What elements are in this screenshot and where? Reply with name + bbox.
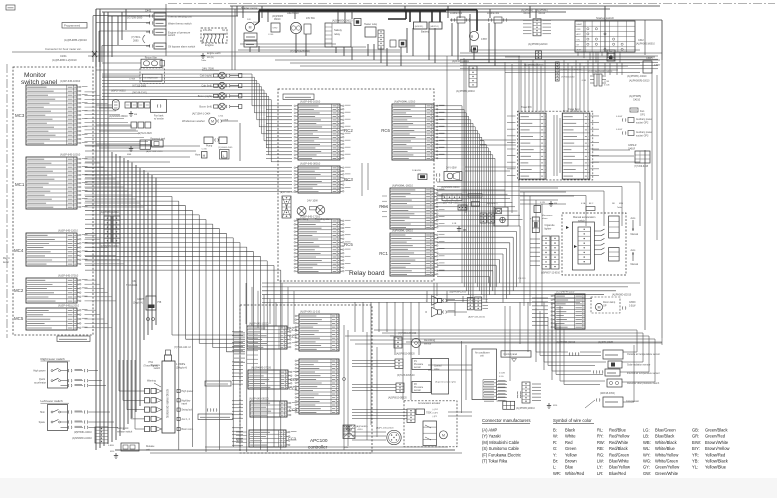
svg-text:GW:: GW: bbox=[643, 471, 651, 476]
svg-text:N4: N4 bbox=[222, 30, 226, 32]
svg-text:(M)PW07-12-8010: (M)PW07-12-8010 bbox=[541, 273, 561, 275]
svg-text:(Y)L6000-2-B5: (Y)L6000-2-B5 bbox=[218, 147, 233, 149]
svg-text:MC3: MC3 bbox=[15, 113, 25, 118]
svg-text:(A)(PH08R): (A)(PH08R) bbox=[521, 9, 533, 12]
svg-text:(A)(PH08D-)02010: (A)(PH08D-)02010 bbox=[612, 294, 632, 297]
svg-text:(A)IP-045-04010: (A)IP-045-04010 bbox=[452, 60, 470, 63]
svg-text:Red: Red bbox=[565, 440, 573, 445]
svg-text:L: L bbox=[223, 154, 225, 158]
svg-text:Auto: Auto bbox=[631, 217, 636, 220]
svg-text:0.85Y: 0.85Y bbox=[481, 38, 488, 41]
svg-text:Brown/White: Brown/White bbox=[705, 440, 729, 445]
svg-text:(Y)SWP-6 C#40-4010: (Y)SWP-6 C#40-4010 bbox=[560, 69, 582, 71]
svg-text:Y:: Y: bbox=[553, 452, 557, 457]
svg-text:(Y)7114-A24 ×2: (Y)7114-A24 ×2 bbox=[174, 346, 191, 349]
svg-text:White/Green: White/Green bbox=[655, 459, 679, 464]
svg-text:C#W9: C#W9 bbox=[629, 302, 636, 304]
svg-text:RC2: RC2 bbox=[344, 128, 353, 133]
svg-text:M1 (B): M1 (B) bbox=[207, 57, 214, 59]
svg-text:sensor: sensor bbox=[414, 389, 421, 392]
svg-text:Warning: Warning bbox=[147, 380, 156, 383]
svg-text:H: H bbox=[203, 154, 206, 158]
svg-text:White/Black: White/Black bbox=[655, 440, 678, 445]
svg-text:(M)P07-06010: (M)P07-06010 bbox=[111, 91, 126, 93]
svg-text:Oil bypass alarm switch: Oil bypass alarm switch bbox=[168, 44, 196, 48]
svg-text:C#W5: C#W5 bbox=[646, 57, 653, 60]
svg-text:socket GP2: socket GP2 bbox=[636, 122, 649, 125]
svg-text:Microwave: Microwave bbox=[542, 214, 553, 217]
svg-text:C#05LR: C#05LR bbox=[628, 145, 637, 147]
svg-text:GB:: GB: bbox=[692, 428, 699, 433]
svg-text:Manual: Manual bbox=[631, 264, 639, 266]
svg-text:GR:: GR: bbox=[692, 434, 699, 439]
svg-text:(A)71064-1 C#04: (A)71064-1 C#04 bbox=[192, 113, 211, 116]
svg-text:YB:: YB: bbox=[692, 459, 699, 464]
svg-text:0.5LW: 0.5LW bbox=[629, 306, 636, 308]
svg-text:BrY:: BrY: bbox=[692, 446, 700, 451]
svg-text:Blue/Red: Blue/Red bbox=[609, 471, 627, 476]
svg-text:(A)(PH08F)-: (A)(PH08F)- bbox=[356, 425, 368, 428]
svg-text:Alternator: Alternator bbox=[287, 11, 299, 15]
svg-text:Yellow/Blue: Yellow/Blue bbox=[705, 465, 727, 470]
svg-text:(A)(P1-045-02020: (A)(P1-045-02020 bbox=[376, 427, 394, 430]
svg-text:ST: ST bbox=[577, 45, 580, 47]
svg-text:(F)7125-6AV5-40: (F)7125-6AV5-40 bbox=[397, 374, 415, 377]
svg-text:L:: L: bbox=[553, 465, 556, 470]
svg-text:M68: M68 bbox=[127, 154, 132, 156]
svg-text:APC100: APC100 bbox=[310, 438, 328, 443]
svg-text:(A)SP-645-06020: (A)SP-645-06020 bbox=[249, 398, 269, 401]
svg-text:WL:: WL: bbox=[643, 446, 650, 451]
svg-text:Pressure: Pressure bbox=[414, 386, 424, 389]
svg-text:(A)(PH08F1-2)0010: (A)(PH08F1-2)0010 bbox=[52, 58, 77, 62]
svg-text:Boom (right): Boom (right) bbox=[198, 94, 212, 98]
svg-text:Starter switch: Starter switch bbox=[596, 16, 615, 20]
svg-text:alarm: alarm bbox=[542, 217, 548, 220]
svg-text:(A)(PH08F)L02010: (A)(PH08F)L02010 bbox=[528, 43, 548, 46]
svg-text:lighter: lighter bbox=[545, 227, 552, 230]
svg-text:M: M bbox=[442, 433, 445, 437]
svg-text:(Y)7122-3020: (Y)7122-3020 bbox=[138, 133, 153, 135]
svg-text:24V 10W: 24V 10W bbox=[307, 199, 318, 203]
svg-text:Water thermo switch: Water thermo switch bbox=[168, 21, 192, 25]
svg-text:relay: relay bbox=[334, 32, 341, 36]
svg-text:Green/Red: Green/Red bbox=[705, 434, 726, 439]
svg-text:W:: W: bbox=[553, 434, 558, 439]
svg-text:(A)SP-645-04010: (A)SP-645-04010 bbox=[468, 316, 486, 319]
svg-text:(A)SP-645-16010: (A)SP-645-16010 bbox=[300, 100, 321, 104]
svg-text:RL:: RL: bbox=[597, 428, 603, 433]
svg-text:C#43: C#43 bbox=[145, 10, 152, 13]
svg-text:(A)(PH08#L-)2010: (A)(PH08#L-)2010 bbox=[394, 100, 416, 104]
svg-text:Air conditioner: Air conditioner bbox=[475, 352, 490, 355]
svg-text:Manual: Manual bbox=[631, 234, 639, 236]
svg-text:Fuel tank: Fuel tank bbox=[154, 115, 164, 118]
svg-text:M10: M10 bbox=[110, 451, 115, 453]
svg-text:(A) AMP: (A) AMP bbox=[482, 428, 498, 433]
svg-text:(A)(PH085-)06010: (A)(PH085-)06010 bbox=[636, 43, 655, 46]
svg-text:(A)SP8010-0E020: (A)SP8010-0E020 bbox=[396, 353, 415, 356]
svg-text:Right lever switch: Right lever switch bbox=[41, 357, 66, 361]
svg-text:RC1: RC1 bbox=[379, 251, 388, 256]
svg-text:LG:: LG: bbox=[643, 428, 650, 433]
svg-text:Engine earth: Engine earth bbox=[207, 52, 221, 55]
svg-text:C#42: C#42 bbox=[638, 39, 644, 42]
svg-text:(Y)7315-2685: (Y)7315-2685 bbox=[132, 86, 147, 88]
svg-text:Green/Yellow: Green/Yellow bbox=[655, 465, 679, 470]
svg-text:(A)SP-645-10010: (A)SP-645-10010 bbox=[60, 79, 81, 83]
svg-text:0.5B: 0.5B bbox=[452, 223, 457, 225]
svg-text:(A)SP-645-08010: (A)SP-645-08010 bbox=[300, 162, 321, 166]
svg-text:1.36MPa: 1.36MPa bbox=[176, 364, 186, 366]
svg-text:(24g/cm²): (24g/cm²) bbox=[133, 302, 143, 305]
svg-text:Receiver drier pressure switch: Receiver drier pressure switch bbox=[627, 382, 660, 385]
svg-text:White/Red: White/Red bbox=[565, 471, 585, 476]
svg-text:Yellow/Black: Yellow/Black bbox=[705, 459, 729, 464]
svg-text:M10: M10 bbox=[619, 203, 624, 205]
svg-text:Programmed: Programmed bbox=[64, 24, 81, 28]
svg-text:(M)PH081-04010: (M)PH081-04010 bbox=[74, 432, 92, 434]
svg-text:0.5LW: 0.5LW bbox=[499, 373, 505, 375]
svg-text:WG:: WG: bbox=[643, 459, 651, 464]
svg-text:(Superstructure right): (Superstructure right) bbox=[435, 381, 456, 384]
svg-text:(S)(PH08D): (S)(PH08D) bbox=[486, 203, 498, 205]
svg-text:LW:: LW: bbox=[597, 459, 604, 464]
svg-text:R: R bbox=[425, 312, 427, 314]
svg-text:(24B-95-3054): (24B-95-3054) bbox=[600, 393, 615, 395]
svg-text:C#06: C#06 bbox=[202, 149, 208, 151]
svg-text:High power: High power bbox=[33, 370, 45, 373]
svg-text:Blue/Yellow: Blue/Yellow bbox=[609, 465, 630, 470]
svg-text:RC6: RC6 bbox=[381, 128, 390, 133]
svg-text:(C)P2: (C)P2 bbox=[433, 413, 439, 415]
svg-text:Blue/White: Blue/White bbox=[609, 459, 630, 464]
svg-text:ACC: ACC bbox=[577, 33, 582, 36]
svg-text:Fusible link: Fusible link bbox=[450, 12, 463, 15]
svg-text:Blue: Blue bbox=[565, 465, 574, 470]
svg-text:Spare: Spare bbox=[39, 421, 46, 424]
svg-text:24 V 65W: 24 V 65W bbox=[446, 167, 457, 170]
svg-text:AT-2: AT-2 bbox=[589, 202, 594, 205]
svg-text:M8: M8 bbox=[134, 114, 138, 116]
svg-text:(A)SP-645-11010: (A)SP-645-11010 bbox=[58, 229, 79, 233]
svg-text:(A)(PH085)-03010: (A)(PH085)-03010 bbox=[100, 211, 119, 214]
svg-text:(F) Furukawa Electric: (F) Furukawa Electric bbox=[482, 452, 521, 457]
svg-text:BrW:: BrW: bbox=[692, 440, 701, 445]
svg-text:Thermo sending unit: Thermo sending unit bbox=[168, 14, 192, 18]
svg-text:RC3: RC3 bbox=[344, 177, 353, 182]
svg-text:OHD: OHD bbox=[273, 28, 278, 30]
svg-text:PN1: PN1 bbox=[149, 362, 154, 364]
svg-text:w/ sender: w/ sender bbox=[154, 117, 164, 120]
svg-text:(A)(PH085) -04010: (A)(PH085) -04010 bbox=[627, 75, 647, 78]
svg-text:RB:: RB: bbox=[597, 446, 604, 451]
svg-text:24V 50A: 24V 50A bbox=[306, 17, 315, 20]
svg-text:YL:: YL: bbox=[692, 465, 698, 470]
svg-text:Cab (left): Cab (left) bbox=[201, 84, 212, 88]
svg-text:Red/Black: Red/Black bbox=[609, 446, 629, 451]
svg-text:travel: travel bbox=[182, 403, 188, 406]
svg-text:(A)SP#08F-03010: (A)SP#08F-03010 bbox=[100, 245, 119, 248]
svg-text:C#04: C#04 bbox=[218, 116, 224, 118]
svg-text:4.5A: 4.5A bbox=[581, 202, 586, 205]
svg-text:RY:: RY: bbox=[597, 434, 604, 439]
svg-text:Pump: Pump bbox=[206, 145, 213, 148]
svg-text:(A)SP#08F1-04010: (A)SP#08F1-04010 bbox=[72, 437, 93, 440]
svg-text:Green/Black: Green/Black bbox=[705, 428, 728, 433]
svg-text:GY:: GY: bbox=[643, 465, 650, 470]
svg-text:Green/White: Green/White bbox=[655, 471, 679, 476]
svg-text:(A)SP#08F-2010: (A)SP#08F-2010 bbox=[146, 150, 163, 153]
svg-text:CC1: CC1 bbox=[289, 334, 298, 339]
svg-text:Travel P/C: Travel P/C bbox=[521, 106, 532, 109]
svg-text:(20kg/cm²): (20kg/cm²) bbox=[176, 367, 187, 370]
svg-text:unit: unit bbox=[480, 355, 484, 358]
svg-text:24V: 24V bbox=[247, 19, 251, 21]
svg-text:Release: Release bbox=[146, 446, 155, 448]
svg-text:Black: Black bbox=[565, 428, 576, 433]
svg-text:Compressor: Compressor bbox=[626, 400, 639, 403]
svg-text:Brown/Yellow: Brown/Yellow bbox=[705, 446, 729, 451]
svg-text:(A)SP-645-07010: (A)SP-645-07010 bbox=[58, 274, 79, 278]
svg-text:WR:: WR: bbox=[553, 471, 561, 476]
svg-text:WB:: WB: bbox=[643, 440, 651, 445]
svg-text:0.5LW: 0.5LW bbox=[616, 116, 623, 118]
svg-text:(24E-98-3241): (24E-98-3241) bbox=[132, 93, 147, 95]
svg-text:(M) Mitsubishi Cable: (M) Mitsubishi Cable bbox=[482, 440, 520, 445]
svg-text:HEAT: HEAT bbox=[577, 23, 583, 26]
svg-text:LR:: LR: bbox=[597, 471, 603, 476]
svg-text:P2: P2 bbox=[414, 384, 418, 386]
svg-text:(A)PH08#L-18010: (A)PH08#L-18010 bbox=[392, 229, 413, 233]
svg-text:Left lever switch: Left lever switch bbox=[41, 399, 63, 403]
svg-text:(Y)7348-4F1020: (Y)7348-4F1020 bbox=[556, 291, 575, 294]
svg-text:0.5W: 0.5W bbox=[540, 202, 545, 204]
svg-text:Relay board: Relay board bbox=[349, 270, 385, 277]
svg-text:MC4: MC4 bbox=[14, 248, 24, 253]
svg-text:(-)P1: (-)P1 bbox=[433, 416, 438, 418]
svg-text:Swing lock: Swing lock bbox=[182, 410, 194, 412]
svg-text:(A)(PH085-2)0010: (A)(PH085-2)0010 bbox=[64, 38, 87, 42]
svg-text:(A)SP#645-07026: (A)SP#645-07026 bbox=[251, 367, 272, 370]
svg-text:sensor: sensor bbox=[414, 366, 421, 369]
svg-text:(A)(PH08R-)02010: (A)(PH08R-)02010 bbox=[556, 341, 576, 344]
svg-text:-04010: -04010 bbox=[538, 13, 546, 15]
svg-text:L: L bbox=[426, 301, 428, 303]
svg-text:R: R bbox=[471, 35, 474, 39]
svg-text:LB:: LB: bbox=[643, 434, 649, 439]
svg-text:(A)SP#08DC-06010: (A)SP#08DC-06010 bbox=[332, 20, 353, 23]
svg-text:Blue/Black: Blue/Black bbox=[655, 434, 675, 439]
svg-text:Monitor: Monitor bbox=[24, 72, 47, 79]
svg-text:Acceleration actuator: Acceleration actuator bbox=[418, 402, 441, 405]
svg-text:accelerator: accelerator bbox=[34, 382, 46, 385]
svg-text:MC2: MC2 bbox=[14, 288, 24, 293]
svg-text:Yellow/Red: Yellow/Red bbox=[705, 452, 726, 457]
svg-text:C#2: C#2 bbox=[132, 280, 137, 283]
svg-text:G:: G: bbox=[553, 446, 557, 451]
svg-text:(A)(PH08F): (A)(PH08F) bbox=[536, 9, 548, 12]
svg-text:GP1: GP1 bbox=[640, 114, 646, 117]
svg-text:(A)(PH08F)-2010: (A)(PH08F)-2010 bbox=[450, 291, 468, 294]
svg-text:White/Yellow: White/Yellow bbox=[655, 452, 678, 457]
svg-text:(A6)P#085: (A6)P#085 bbox=[272, 15, 284, 18]
svg-text:LY:: LY: bbox=[597, 465, 603, 470]
svg-text:Br:: Br: bbox=[553, 459, 558, 464]
svg-text:(Y)7209-6248: (Y)7209-6248 bbox=[634, 166, 649, 168]
svg-text:(Y) Yazaki: (Y) Yazaki bbox=[482, 434, 501, 439]
svg-text:(A)SP#08F-06010: (A)SP#08F-06010 bbox=[109, 115, 128, 118]
svg-text:RW:: RW: bbox=[597, 440, 605, 445]
svg-text:Red/White: Red/White bbox=[609, 440, 629, 445]
svg-text:White: White bbox=[565, 434, 576, 439]
svg-text:(Y)7325(A250-90): (Y)7325(A250-90) bbox=[290, 50, 310, 53]
svg-text:Battery: Battery bbox=[421, 29, 430, 33]
svg-text:R:: R: bbox=[553, 440, 557, 445]
svg-text:Return filter: Return filter bbox=[145, 56, 158, 59]
svg-text:(HDF51): (HDF51) bbox=[430, 26, 439, 28]
svg-text:Red/Blue: Red/Blue bbox=[609, 428, 627, 433]
svg-text:24V-25G: 24V-25G bbox=[203, 30, 212, 32]
svg-text:Starter motor: Starter motor bbox=[241, 6, 257, 10]
svg-text:socket GP3: socket GP3 bbox=[636, 135, 649, 138]
svg-text:(A)(07D-)022R: (A)(07D-)022R bbox=[598, 341, 613, 344]
svg-text:C#38: C#38 bbox=[604, 81, 610, 83]
svg-text:(Travel signal): (Travel signal) bbox=[144, 365, 159, 368]
svg-text:CC2: CC2 bbox=[290, 377, 299, 382]
svg-text:-0010: -0010 bbox=[357, 429, 363, 431]
svg-text:YR:: YR: bbox=[692, 452, 699, 457]
svg-text:Engine: Engine bbox=[205, 43, 214, 47]
svg-text:OFF: OFF bbox=[577, 29, 582, 31]
svg-text:Red/Yellow: Red/Yellow bbox=[609, 434, 629, 439]
svg-text:B:: B: bbox=[553, 428, 557, 433]
svg-text:MC1: MC1 bbox=[15, 182, 25, 187]
svg-text:Aux 1, 2: Aux 1, 2 bbox=[182, 418, 191, 421]
svg-text:06010: 06010 bbox=[274, 19, 281, 21]
svg-text:Symbol of wire color: Symbol of wire color bbox=[553, 418, 592, 423]
svg-text:Solar radiation sensor: Solar radiation sensor bbox=[627, 364, 650, 367]
svg-text:C#40: C#40 bbox=[268, 34, 274, 36]
svg-text:Horn: Horn bbox=[40, 411, 46, 414]
svg-text:switch: switch bbox=[168, 33, 176, 37]
svg-text:+: + bbox=[530, 218, 532, 221]
svg-text:lever: lever bbox=[3, 260, 9, 264]
svg-text:Horn: Horn bbox=[195, 154, 201, 157]
svg-text:RC5: RC5 bbox=[344, 242, 353, 247]
svg-text:0.85B: 0.85B bbox=[223, 120, 229, 122]
svg-text:Room, cab lamp: Room, cab lamp bbox=[563, 111, 580, 113]
svg-text:(HDF51): (HDF51) bbox=[415, 26, 424, 28]
svg-text:(A)SP-645-10010: (A)SP-645-10010 bbox=[60, 153, 81, 157]
svg-text:Y-4#2-1: Y-4#2-1 bbox=[518, 278, 526, 280]
svg-text:C#6PN: C#6PN bbox=[137, 299, 145, 301]
svg-text:Boom conv.: Boom conv. bbox=[182, 429, 194, 431]
svg-text:(A)(PH085R)-02010: (A)(PH085R)-02010 bbox=[629, 80, 650, 83]
svg-text:M: M bbox=[249, 26, 252, 30]
svg-text:(A)SP-645-17010: (A)SP-645-17010 bbox=[300, 215, 321, 219]
svg-text:Yellow: Yellow bbox=[565, 452, 577, 457]
svg-text:(A)(PH085-)06010: (A)(PH085-)06010 bbox=[516, 407, 535, 410]
svg-text:Connector manufacturers: Connector manufacturers bbox=[482, 418, 530, 423]
svg-text:(A)SP8010-0E020: (A)SP8010-0E020 bbox=[388, 397, 407, 400]
svg-text:M: M bbox=[211, 120, 214, 124]
svg-text:Control panel: Control panel bbox=[504, 353, 518, 356]
svg-text:(T) Tokai Rika: (T) Tokai Rika bbox=[482, 459, 508, 464]
svg-text:Boom (left): Boom (left) bbox=[199, 105, 212, 109]
svg-text:705K: 705K bbox=[426, 412, 432, 415]
svg-text:N8: N8 bbox=[612, 203, 616, 205]
svg-text:24 A16W: 24 A16W bbox=[412, 169, 422, 172]
svg-text:0.85B: 0.85B bbox=[108, 445, 114, 447]
svg-text:High power: High power bbox=[182, 390, 194, 393]
svg-text:0.5LB: 0.5LB bbox=[604, 85, 610, 87]
svg-text:Green: Green bbox=[565, 446, 577, 451]
svg-text:High/low: High/low bbox=[182, 400, 191, 402]
svg-text:0.5G: 0.5G bbox=[499, 376, 504, 378]
svg-text:Brown: Brown bbox=[565, 459, 577, 464]
svg-text:Auto: Auto bbox=[631, 249, 636, 252]
svg-text:Solenoid valve block: Solenoid valve block bbox=[166, 389, 170, 418]
svg-text:-04010: -04010 bbox=[523, 13, 531, 15]
svg-text:M20: M20 bbox=[344, 447, 349, 449]
svg-text:CC4: CC4 bbox=[289, 407, 298, 412]
svg-text:M16: M16 bbox=[553, 405, 558, 407]
svg-text:GP: GP bbox=[603, 305, 607, 308]
svg-text:Windscreen washer: Windscreen washer bbox=[182, 119, 205, 123]
svg-text:(A)(PH085-)06010: (A)(PH085-)06010 bbox=[456, 90, 475, 93]
svg-text:T-03-A024: T-03-A024 bbox=[126, 284, 138, 287]
svg-text:WY:: WY: bbox=[643, 452, 651, 457]
svg-text:Connector for hour meter etc.: Connector for hour meter etc. bbox=[45, 47, 82, 51]
svg-text:C#310: C#310 bbox=[633, 99, 641, 102]
svg-text:(Y)7348-1464-90: (Y)7348-1464-90 bbox=[398, 332, 417, 335]
svg-text:Blue/Green: Blue/Green bbox=[655, 428, 676, 433]
svg-text:Fusible link: Fusible link bbox=[487, 12, 500, 15]
svg-text:(A)SP-645-11-010: (A)SP-645-11-010 bbox=[300, 311, 321, 314]
svg-text:Table: Table bbox=[201, 60, 207, 62]
svg-text:(A)PH08#L-16010: (A)PH08#L-16010 bbox=[392, 184, 413, 188]
svg-text:(Y)7199-2690: (Y)7199-2690 bbox=[127, 17, 143, 20]
svg-text:2690: 2690 bbox=[133, 40, 139, 43]
svg-text:M: M bbox=[598, 306, 601, 310]
svg-text:0.5LW: 0.5LW bbox=[616, 129, 623, 131]
svg-text:CC3: CC3 bbox=[288, 436, 297, 441]
svg-text:RG:: RG: bbox=[597, 452, 604, 457]
svg-text:Heater relay: Heater relay bbox=[364, 23, 378, 26]
svg-text:Pressure: Pressure bbox=[414, 363, 424, 366]
svg-text:White/Blue: White/Blue bbox=[655, 446, 676, 451]
svg-text:Y58: Y58 bbox=[157, 301, 162, 304]
svg-text:release switch: release switch bbox=[117, 431, 133, 434]
svg-text:Red/Green: Red/Green bbox=[609, 452, 630, 457]
svg-text:(S) Sumitomo Cable: (S) Sumitomo Cable bbox=[482, 446, 520, 451]
svg-text:MC5: MC5 bbox=[14, 316, 24, 321]
svg-text:P1: P1 bbox=[414, 361, 418, 363]
svg-text:(+)P4: (+)P4 bbox=[433, 409, 439, 411]
svg-text:ON: ON bbox=[577, 39, 581, 41]
svg-text:(A)SP-645(L)2010: (A)SP-645(L)2010 bbox=[58, 304, 80, 308]
